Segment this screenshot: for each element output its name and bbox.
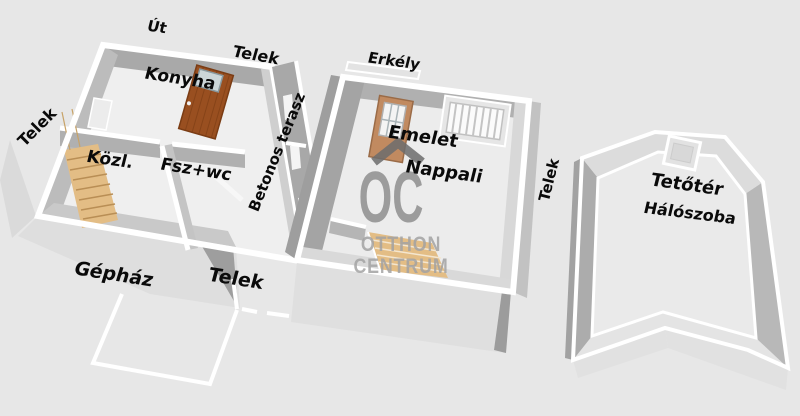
watermark-line2: CENTRUM: [353, 255, 448, 279]
watermark-line1: OTTHON: [361, 233, 441, 257]
floor-plan-canvas: OC OTTHON CENTRUM Út Telek Konyha Telek …: [0, 0, 800, 416]
skylight: [663, 136, 700, 170]
skylight-glass: [671, 143, 694, 163]
floor-plan-render: OC OTTHON CENTRUM Út Telek Konyha Telek …: [0, 0, 800, 416]
